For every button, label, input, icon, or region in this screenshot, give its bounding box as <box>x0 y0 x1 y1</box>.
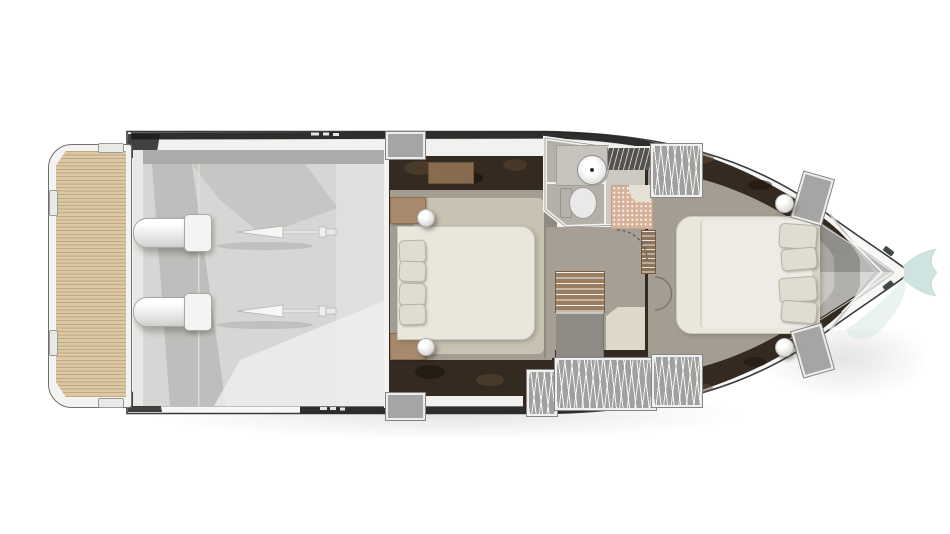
glazing-highlight-dashes <box>311 133 345 411</box>
owner-bedside-locker-top <box>791 172 834 226</box>
owner-cabin-double-doors <box>655 277 672 310</box>
starboard-shaft-assembly <box>237 305 336 317</box>
port-engine-gearbox <box>184 214 212 252</box>
floor-plan-canvas: Motor yacht lower-deck floor plan Engine… <box>0 0 950 534</box>
owner-pillow-4 <box>780 299 818 324</box>
vip-pillow-2 <box>399 261 427 283</box>
bow-cleat-top <box>883 246 895 257</box>
transom-cleat-top <box>49 190 58 216</box>
swim-platform-teak <box>56 151 126 397</box>
washbasin-drain <box>590 168 594 172</box>
vent-shelf <box>607 146 650 170</box>
transom-cleat-bottom <box>49 330 58 356</box>
port-shaft-assembly <box>237 226 336 238</box>
vip-pillow-3 <box>399 283 427 307</box>
hanging-locker-owner-bottom <box>652 355 702 407</box>
platform-latch-bottom <box>98 398 124 408</box>
vip-dresser <box>428 162 474 184</box>
bow-cleat-bottom <box>882 280 894 291</box>
vip-pillow-4 <box>399 304 427 326</box>
owner-lamp-bottom <box>775 338 794 357</box>
hanging-locker-landing-bottom <box>555 358 656 410</box>
hanging-locker-aft-bottom <box>527 370 557 416</box>
vip-lamp-bottom <box>417 338 435 356</box>
bulkhead-step-bottom <box>386 393 425 420</box>
bulkhead-step-top <box>386 132 425 159</box>
hanging-locker-owner-top <box>651 144 702 197</box>
toilet-bowl <box>569 187 597 219</box>
engine-room-floor: Engine room <box>133 146 389 408</box>
owner-pillow-2 <box>780 246 818 271</box>
owner-lamp-top <box>775 194 794 213</box>
landing-cabinet <box>556 312 604 360</box>
platform-latch-top <box>98 143 124 153</box>
hanging-closet <box>555 271 605 313</box>
starboard-engine-gearbox <box>184 293 212 331</box>
vip-lamp-top <box>417 209 435 227</box>
whale-tail-accent <box>903 249 937 296</box>
linen-shelves <box>641 230 656 274</box>
stern-glazing-stub-top <box>128 134 160 158</box>
